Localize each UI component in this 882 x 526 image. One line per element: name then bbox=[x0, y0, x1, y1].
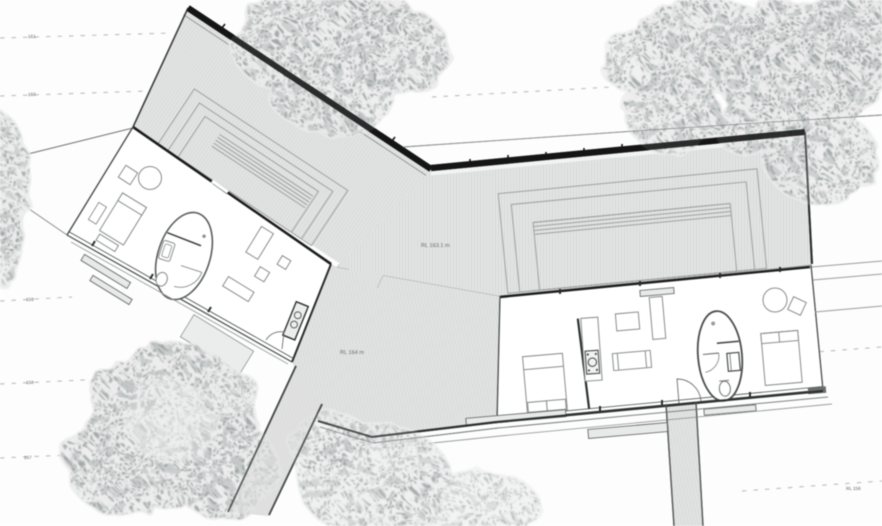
svg-text:RL 164 m: RL 164 m bbox=[340, 350, 364, 356]
svg-text:RL 163.1 m: RL 163.1 m bbox=[421, 243, 450, 249]
svg-text:157: 157 bbox=[24, 455, 32, 460]
svg-text:159: 159 bbox=[26, 297, 34, 302]
svg-text:158: 158 bbox=[26, 380, 34, 385]
svg-text:RL 156: RL 156 bbox=[846, 486, 861, 491]
svg-text:161: 161 bbox=[28, 34, 36, 39]
svg-text:160: 160 bbox=[28, 92, 36, 97]
